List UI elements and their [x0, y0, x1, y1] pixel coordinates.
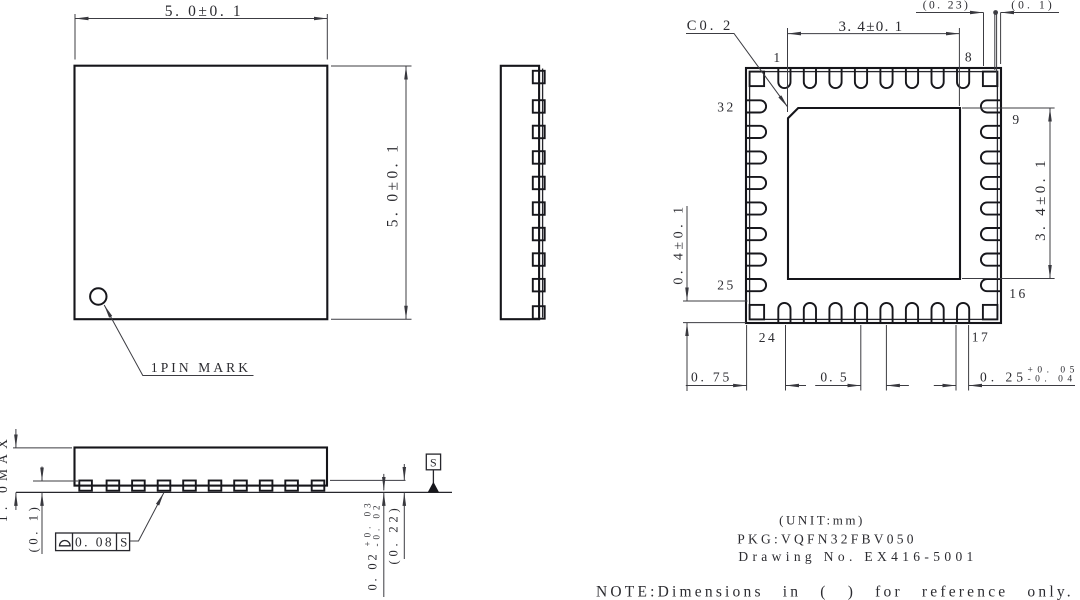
- svg-text:0. 75: 0. 75: [691, 370, 732, 385]
- svg-text:25: 25: [717, 277, 736, 292]
- svg-text:S: S: [430, 455, 437, 469]
- svg-text:(0. 23): (0. 23): [923, 0, 970, 11]
- svg-text:(UNIT:mm): (UNIT:mm): [779, 513, 865, 528]
- svg-text:5. 0±0. 1: 5. 0±0. 1: [385, 142, 402, 228]
- svg-text:16: 16: [1009, 286, 1028, 301]
- svg-text:(0. 1): (0. 1): [1011, 0, 1055, 11]
- svg-text:Drawing No. EX416-5001: Drawing No. EX416-5001: [738, 549, 977, 564]
- svg-text:S: S: [120, 535, 127, 550]
- svg-text:17: 17: [972, 330, 991, 345]
- svg-text:8: 8: [965, 50, 973, 65]
- svg-text:1: 1: [773, 50, 781, 65]
- svg-text:-0. 02: -0. 02: [372, 502, 382, 547]
- svg-text:3. 4±0. 1: 3. 4±0. 1: [839, 19, 904, 35]
- svg-text:5. 0±0. 1: 5. 0±0. 1: [165, 3, 243, 20]
- svg-text:0. 25: 0. 25: [980, 369, 1027, 384]
- svg-text:1PIN MARK: 1PIN MARK: [151, 360, 251, 375]
- svg-text:PKG:VQFN32FBV050: PKG:VQFN32FBV050: [737, 532, 917, 547]
- svg-text:NOTE:Dimensions in ( ) for ref: NOTE:Dimensions in ( ) for reference onl…: [596, 584, 1074, 600]
- svg-text:(0. 1): (0. 1): [26, 504, 40, 553]
- svg-text:-0. 04: -0. 04: [1028, 374, 1077, 384]
- svg-text:9: 9: [1012, 112, 1020, 127]
- svg-text:0. 5: 0. 5: [820, 370, 848, 385]
- svg-text:24: 24: [759, 330, 778, 345]
- svg-text:C0. 2: C0. 2: [687, 18, 733, 34]
- svg-text:1. 0MAX: 1. 0MAX: [0, 434, 10, 522]
- svg-text:0. 4±0. 1: 0. 4±0. 1: [672, 203, 687, 284]
- svg-text:0. 02: 0. 02: [366, 552, 380, 591]
- svg-text:32: 32: [717, 100, 736, 115]
- svg-text:(0. 22): (0. 22): [386, 505, 400, 565]
- svg-text:0. 08: 0. 08: [75, 535, 114, 550]
- svg-text:3. 4±0. 1: 3. 4±0. 1: [1033, 157, 1049, 241]
